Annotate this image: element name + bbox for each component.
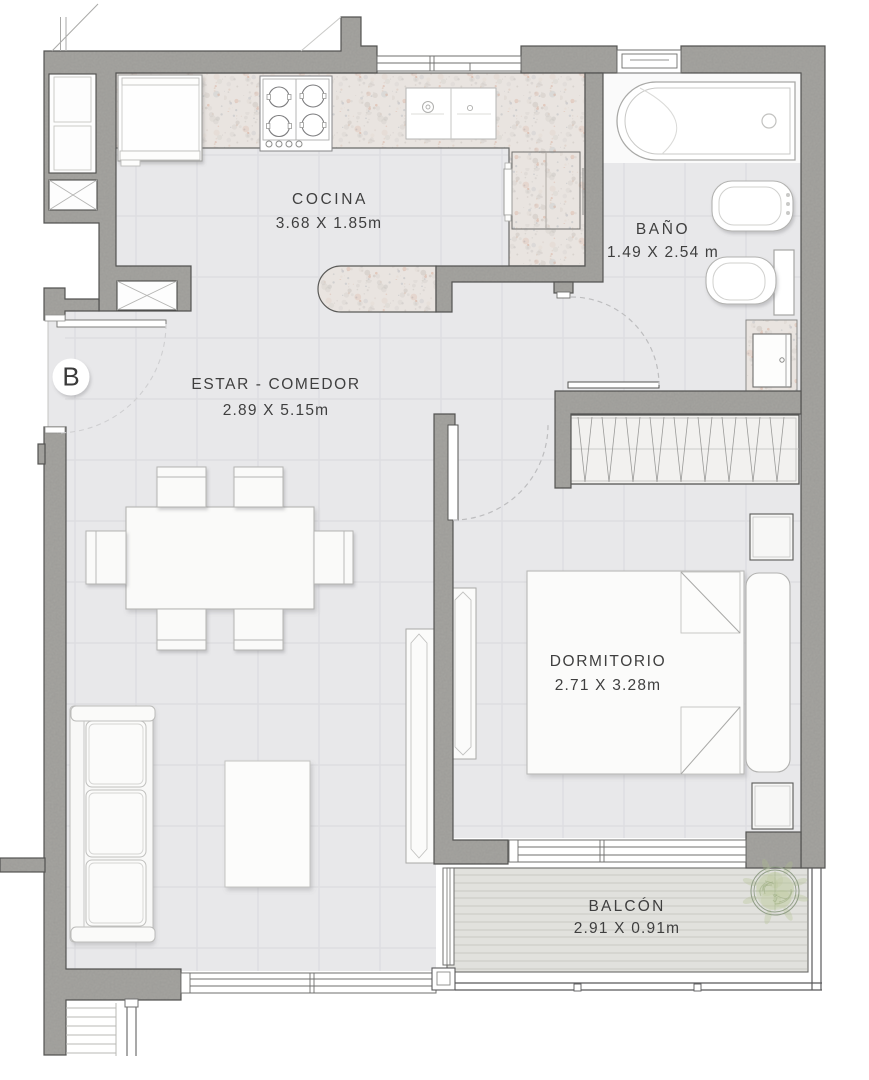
svg-text:3.68 X 1.85m: 3.68 X 1.85m: [276, 215, 383, 232]
svg-text:ESTAR - COMEDOR: ESTAR - COMEDOR: [191, 376, 360, 393]
svg-text:2.89 X 5.15m: 2.89 X 5.15m: [223, 402, 330, 419]
svg-text:COCINA: COCINA: [292, 191, 368, 208]
svg-text:DORMITORIO: DORMITORIO: [550, 653, 666, 670]
svg-text:2.91 X 0.91m: 2.91 X 0.91m: [574, 920, 681, 937]
svg-text:BAÑO: BAÑO: [636, 221, 690, 238]
svg-text:B: B: [62, 362, 79, 392]
svg-text:1.49 X 2.54 m: 1.49 X 2.54 m: [607, 244, 719, 261]
svg-text:2.71 X 3.28m: 2.71 X 3.28m: [555, 677, 662, 694]
svg-text:BALCÓN: BALCÓN: [589, 898, 666, 915]
